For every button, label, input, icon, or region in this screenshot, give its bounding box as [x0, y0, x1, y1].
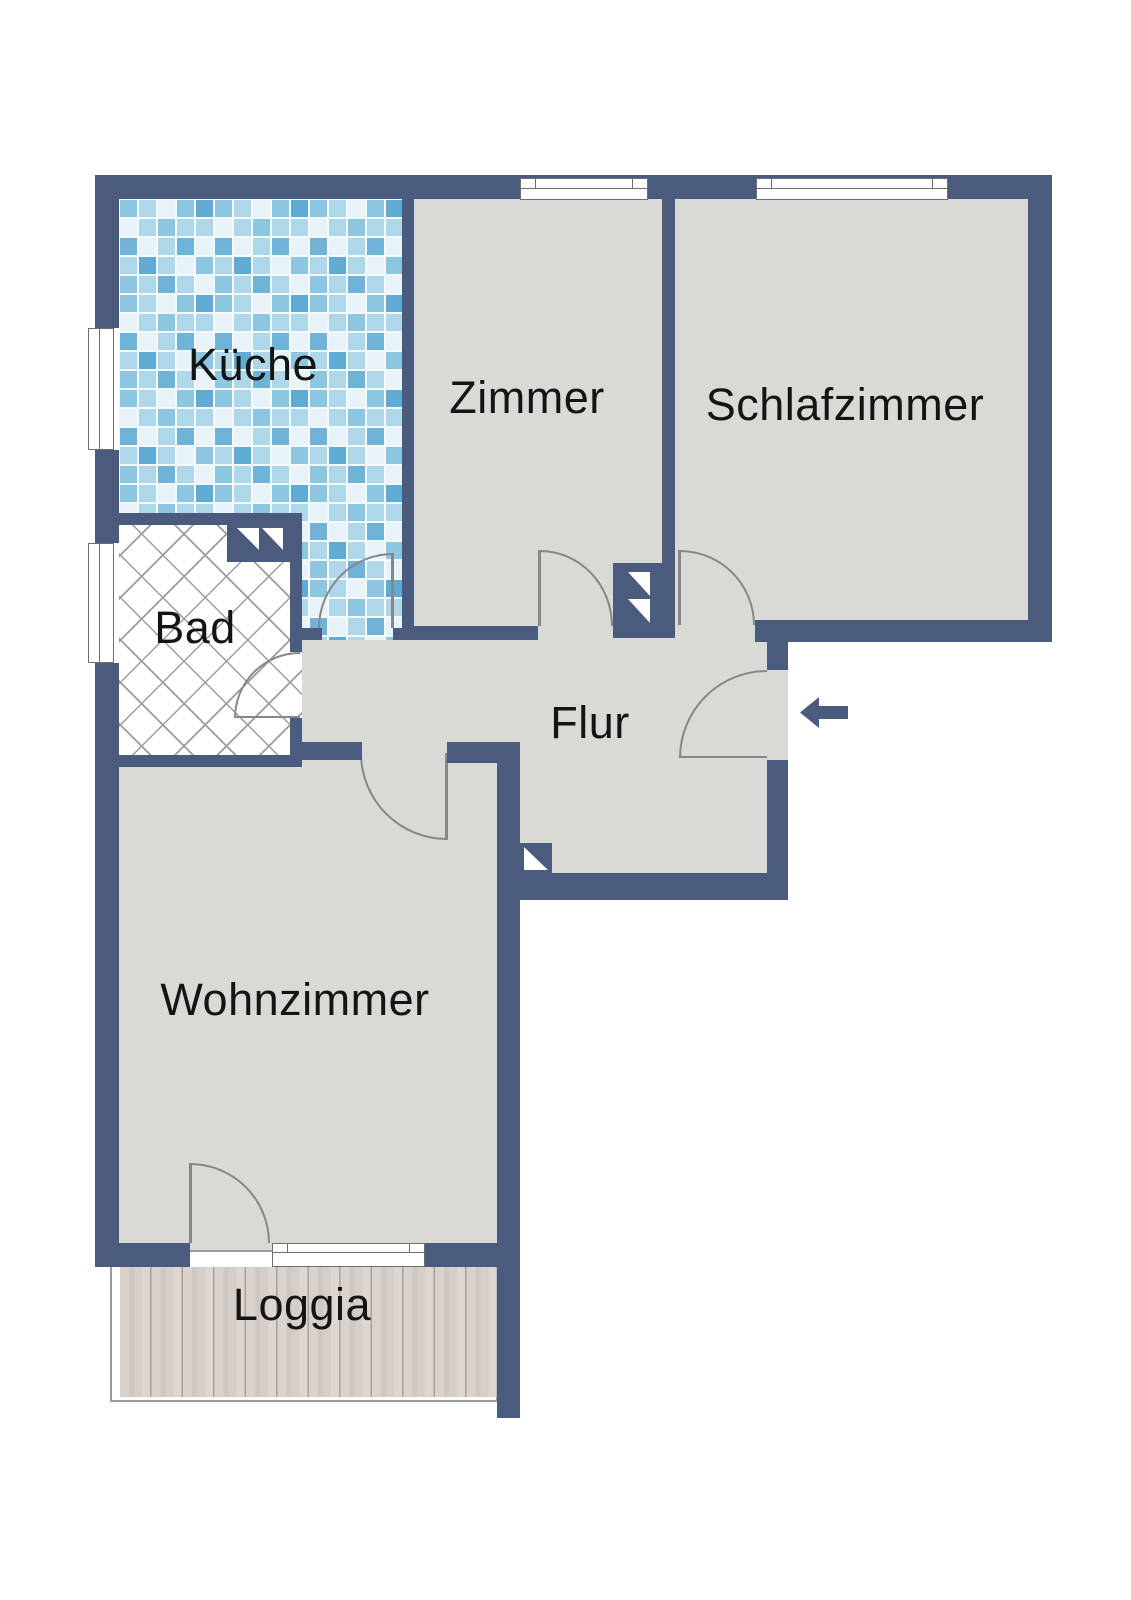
wall-exterior-right — [1028, 199, 1052, 642]
entrance-arrow-icon — [798, 696, 850, 730]
wall-exterior-left-3 — [95, 513, 119, 543]
loggia-window — [272, 1243, 425, 1267]
wall-exterior-left-1 — [95, 199, 119, 328]
window-frame-line — [99, 544, 100, 662]
wall-kueche-bottom-right — [393, 628, 402, 640]
wall-wohnzimmer-bottom-left — [95, 1243, 190, 1267]
kueche-label: Küche — [188, 339, 318, 391]
entrance-door-leaf — [679, 756, 767, 759]
window-frame-line — [521, 188, 647, 189]
schlafzimmer-window — [756, 178, 948, 200]
schlafzimmer-label: Schlafzimmer — [706, 379, 985, 431]
window-frame-tick — [535, 179, 536, 188]
window-frame-tick — [287, 1244, 288, 1252]
loggia-door-leaf — [189, 1163, 192, 1243]
wall-wohnzimmer-right — [497, 763, 520, 1418]
wall-kueche-zimmer-divider — [402, 199, 414, 640]
bad-window — [88, 543, 114, 663]
wall-flur-bottom — [520, 873, 788, 900]
window-frame-tick — [932, 179, 933, 188]
wall-zimmer-schlafzimmer-divider — [662, 199, 675, 638]
wohnzimmer-label: Wohnzimmer — [160, 974, 429, 1026]
zimmer-door-leaf — [538, 550, 541, 626]
bad-label: Bad — [154, 602, 236, 654]
wall-entrance-top — [767, 642, 788, 670]
wall-zimmer-bottom — [402, 626, 538, 640]
zimmer-window — [520, 178, 648, 200]
wall-wohnzimmer-top-left — [300, 742, 362, 760]
kueche-door-leaf — [391, 553, 394, 628]
window-frame-line — [273, 1252, 424, 1253]
window-frame-line — [757, 188, 947, 189]
wall-kueche-bottom-left — [302, 628, 322, 640]
wall-bad-right-upper — [290, 525, 302, 652]
loggia-label: Loggia — [233, 1279, 371, 1331]
window-frame-tick — [771, 179, 772, 188]
wall-exterior-left-4 — [95, 663, 119, 1267]
window-frame-line — [99, 329, 100, 449]
kueche-window — [88, 328, 114, 450]
wohnzimmer-door-leaf — [445, 753, 448, 840]
schlafzimmer-door-leaf — [678, 550, 681, 625]
wall-wohnzimmer-top-right — [447, 742, 520, 763]
flur-label: Flur — [550, 697, 630, 749]
window-frame-tick — [409, 1244, 410, 1252]
wall-wohnzimmer-bottom-right — [425, 1243, 520, 1267]
wall-bad-bottom — [95, 755, 302, 767]
window-frame-tick — [632, 179, 633, 188]
floor-plan: Küche Zimmer Schlafzimmer Bad Flur Wohnz… — [0, 0, 1131, 1600]
wall-schlafzimmer-bottom — [755, 620, 1052, 642]
wall-exterior-left-2 — [95, 450, 119, 513]
zimmer-label: Zimmer — [449, 372, 604, 424]
wall-bad-right-lower — [290, 718, 302, 755]
